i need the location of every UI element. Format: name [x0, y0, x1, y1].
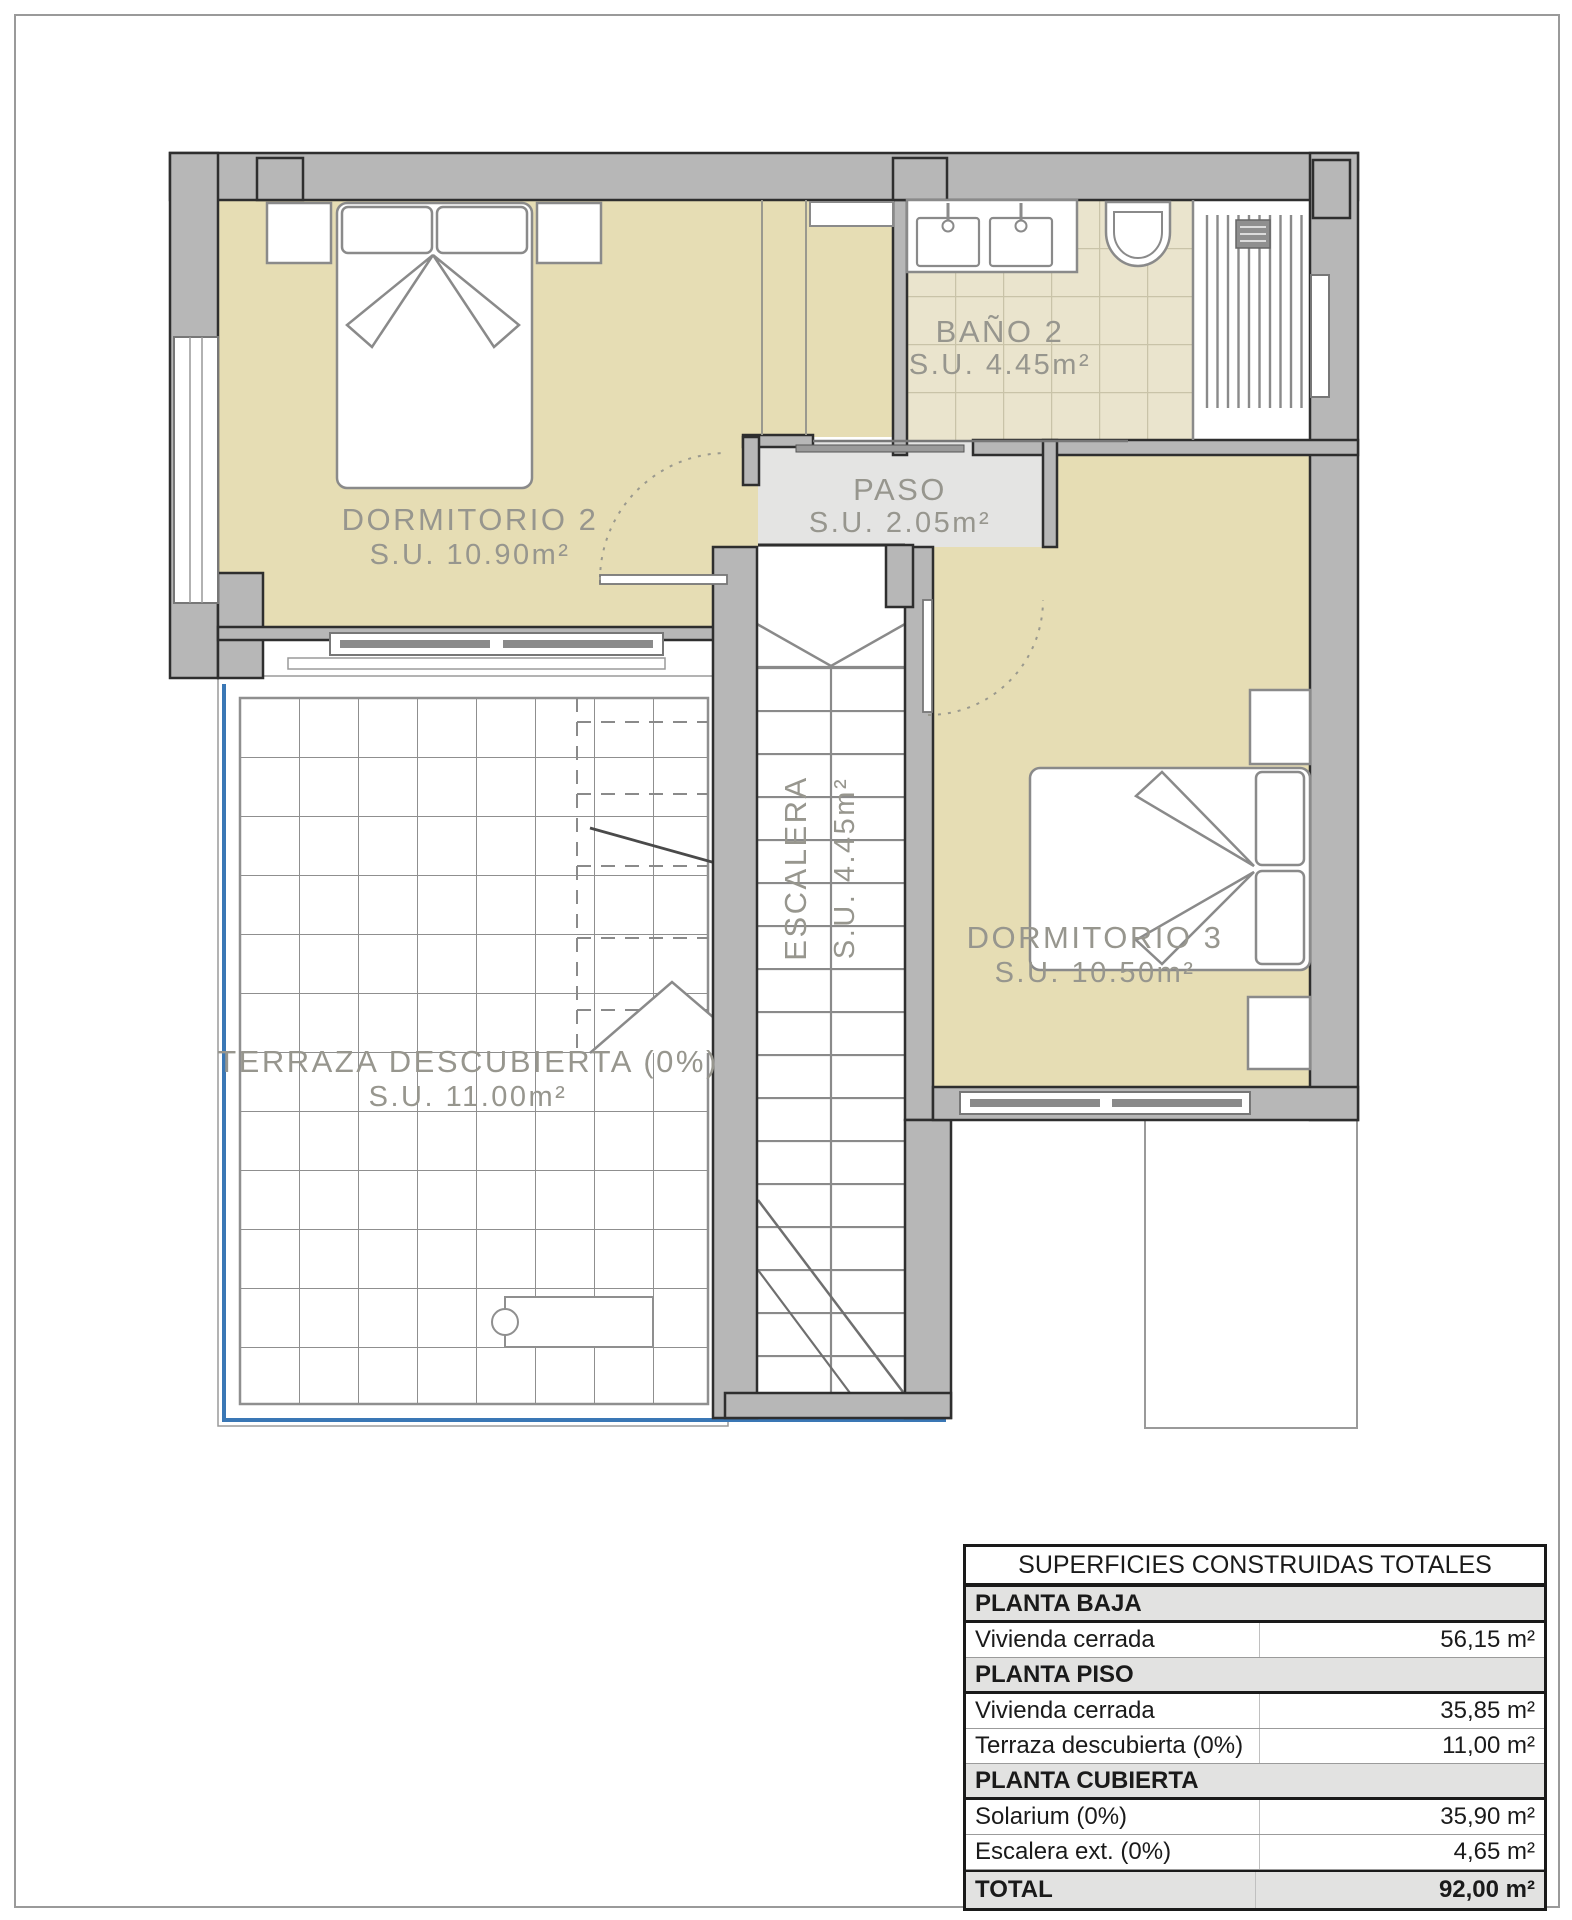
dormitorio2-label: DORMITORIO 2	[342, 502, 599, 537]
wall-top	[170, 153, 1358, 200]
table-title-text: SUPERFICIES CONSTRUIDAS TOTALES	[1018, 1551, 1492, 1580]
table-row: Escalera ext. (0%) 4,65 m²	[966, 1835, 1544, 1870]
table-total-row: TOTAL 92,00 m²	[966, 1870, 1544, 1908]
paso-area: S.U. 2.05m²	[809, 507, 991, 539]
section-planta-baja: PLANTA BAJA	[966, 1586, 1544, 1623]
section-header: PLANTA PISO	[966, 1661, 1544, 1689]
nightstand-icon	[537, 203, 601, 263]
terraza-area: S.U. 11.00m²	[369, 1081, 568, 1113]
tap-icon	[1016, 221, 1027, 232]
paso-label: PASO	[853, 472, 947, 507]
tap-icon	[943, 221, 954, 232]
window-dorm2-sill	[288, 658, 665, 669]
wardrobe-shelf	[810, 202, 893, 226]
row-label: Solarium (0%)	[966, 1803, 1259, 1831]
row-value: 11,00 m²	[1259, 1729, 1544, 1763]
window-dorm2-bottom-leaf1	[340, 640, 490, 648]
bano2-label: BAÑO 2	[936, 314, 1065, 349]
total-label: TOTAL	[966, 1876, 1255, 1904]
row-label: Vivienda cerrada	[966, 1697, 1259, 1725]
wall-stairs-left	[713, 547, 757, 1418]
drawing-sheet: DORMITORIO 2 S.U. 10.90m² BAÑO 2 S.U. 4.…	[0, 0, 1572, 1920]
dormitorio3-label: DORMITORIO 3	[967, 920, 1224, 955]
lower-floor-projection-outline	[1145, 1112, 1357, 1428]
pillow-icon	[1256, 871, 1304, 964]
dormitorio2-area: S.U. 10.90m²	[370, 539, 571, 571]
wall-paso-dorm3	[1043, 440, 1057, 547]
door-leaf-dorm3	[923, 600, 932, 712]
terraza-step	[505, 1297, 653, 1347]
escalera-area: S.U. 4.45m²	[829, 777, 861, 959]
stairs-icon	[757, 545, 905, 1395]
pillow-icon	[342, 207, 432, 253]
nightstand-icon	[267, 203, 331, 263]
pillar-top-mid	[893, 158, 947, 200]
bano2-area: S.U. 4.45m²	[909, 349, 1091, 381]
row-value: 56,15 m²	[1259, 1623, 1544, 1657]
window-dorm3-leaf1	[970, 1099, 1100, 1107]
escalera-label: ESCALERA	[778, 775, 813, 960]
table-row: Vivienda cerrada 56,15 m²	[966, 1623, 1544, 1658]
table-title: SUPERFICIES CONSTRUIDAS TOTALES	[966, 1547, 1544, 1586]
table-row: Solarium (0%) 35,90 m²	[966, 1800, 1544, 1835]
dormitorio3-area: S.U. 10.50m²	[995, 957, 1196, 989]
pillar-top-left	[257, 158, 303, 200]
wall-stairs-right-lower	[905, 1120, 951, 1418]
wall-left-corner-block	[218, 573, 263, 678]
dormitorio3-floor-upper	[1057, 455, 1310, 547]
nightstand-icon	[1248, 997, 1310, 1069]
wall-paso-left-jamb	[743, 437, 759, 485]
section-planta-cubierta: PLANTA CUBIERTA	[966, 1764, 1544, 1800]
row-value: 35,90 m²	[1259, 1800, 1544, 1834]
section-header: PLANTA CUBIERTA	[966, 1767, 1544, 1795]
door-leaf-dorm2	[600, 575, 727, 584]
drain-icon	[492, 1309, 518, 1335]
window-dorm2-left	[174, 337, 218, 603]
table-row: Terraza descubierta (0%) 11,00 m²	[966, 1729, 1544, 1764]
table-row: Vivienda cerrada 35,85 m²	[966, 1694, 1544, 1729]
row-label: Terraza descubierta (0%)	[966, 1732, 1259, 1760]
total-value: 92,00 m²	[1255, 1872, 1545, 1908]
row-label: Vivienda cerrada	[966, 1626, 1259, 1654]
wall-stairs-bottom	[725, 1393, 951, 1418]
floor-plan: DORMITORIO 2 S.U. 10.90m² BAÑO 2 S.U. 4.…	[0, 0, 1572, 1500]
pillow-icon	[437, 207, 527, 253]
pillar-top-right	[1313, 160, 1350, 218]
section-header: PLANTA BAJA	[966, 1590, 1544, 1618]
wall-wardrobe-bath	[893, 200, 907, 455]
section-planta-piso: PLANTA PISO	[966, 1658, 1544, 1694]
nightstand-icon	[1250, 690, 1310, 764]
window-dorm3-leaf2	[1112, 1099, 1242, 1107]
window-bath-right	[1311, 275, 1329, 397]
row-label: Escalera ext. (0%)	[966, 1838, 1259, 1866]
row-value: 35,85 m²	[1259, 1694, 1544, 1728]
row-value: 4,65 m²	[1259, 1835, 1544, 1869]
terraza-label: TERRAZA DESCUBIERTA (0%)	[217, 1044, 719, 1079]
sliding-door-bath	[796, 445, 964, 452]
window-dorm2-bottom-leaf2	[503, 640, 653, 648]
pillow-icon	[1256, 772, 1304, 865]
surfaces-table: SUPERFICIES CONSTRUIDAS TOTALES PLANTA B…	[963, 1544, 1547, 1911]
wall-jamb-block	[886, 545, 913, 607]
